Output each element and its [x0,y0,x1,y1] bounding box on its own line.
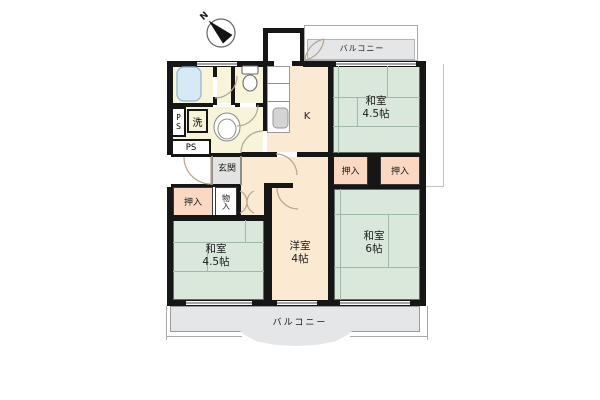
washbasin-icon [214,113,240,141]
door-arc-toilet [237,105,258,126]
label-tatami-southwest: 和室 4.5帖 [190,243,242,268]
kitchen-sink-icon [273,108,288,128]
balcony-door-leaf [305,39,324,60]
room-size: 4.5帖 [190,256,242,269]
door-arc-kitchen [276,154,297,175]
label-kitchen: K [300,111,314,123]
door-arcs [184,39,324,213]
door-arc-bathroom [215,76,237,98]
toilet-icon [242,66,258,91]
room-size: 4.5帖 [350,108,402,121]
label-tatami-northeast: 和室 4.5帖 [350,95,402,120]
bathtub-icon [177,67,201,101]
door-arc-front-door [184,157,211,184]
bifold-door-icon [247,191,254,213]
floorplan-canvas: 押入 押入 押入 物入 [0,0,600,400]
door-arc-washroom [241,131,263,153]
compass: N [199,10,235,47]
label-entrance: 玄関 [215,164,239,175]
room-size: 4帖 [274,253,326,266]
door-arc-western-room [277,188,298,209]
fixtures-overlay: N [0,0,600,400]
room-size: 6帖 [348,243,400,256]
room-name: 和室 [350,95,402,108]
room-name: 和室 [348,230,400,243]
bifold-door-icon [240,191,247,213]
label-western-room: 洋室 4帖 [274,240,326,265]
label-tatami-southeast: 和室 6帖 [348,230,400,255]
room-name: 洋室 [274,240,326,253]
room-name: 和室 [190,243,242,256]
balcony-door-leaf [305,39,324,60]
